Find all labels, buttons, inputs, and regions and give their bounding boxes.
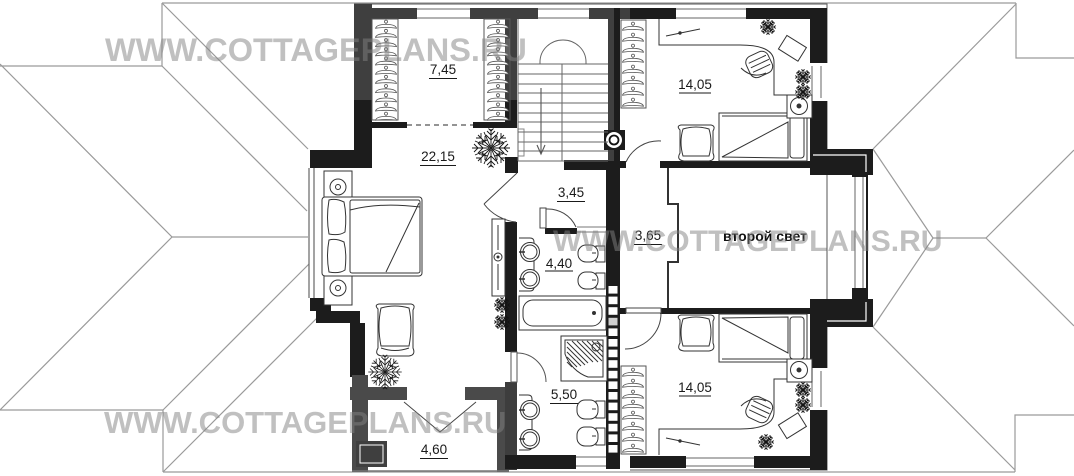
svg-text:4,60: 4,60 bbox=[421, 442, 447, 457]
svg-text:3,45: 3,45 bbox=[558, 185, 584, 200]
svg-text:WWW.COTTAGEPLANS.RU: WWW.COTTAGEPLANS.RU bbox=[553, 225, 942, 258]
svg-text:22,15: 22,15 bbox=[421, 149, 455, 164]
svg-text:4,40: 4,40 bbox=[546, 256, 572, 271]
svg-text:14,05: 14,05 bbox=[678, 380, 712, 395]
svg-text:5,50: 5,50 bbox=[551, 387, 577, 402]
svg-text:14,05: 14,05 bbox=[678, 77, 712, 92]
svg-text:WWW.COTTAGEPLANS.RU: WWW.COTTAGEPLANS.RU bbox=[105, 32, 527, 68]
svg-text:WWW.COTTAGEPLANS.RU: WWW.COTTAGEPLANS.RU bbox=[104, 405, 506, 440]
